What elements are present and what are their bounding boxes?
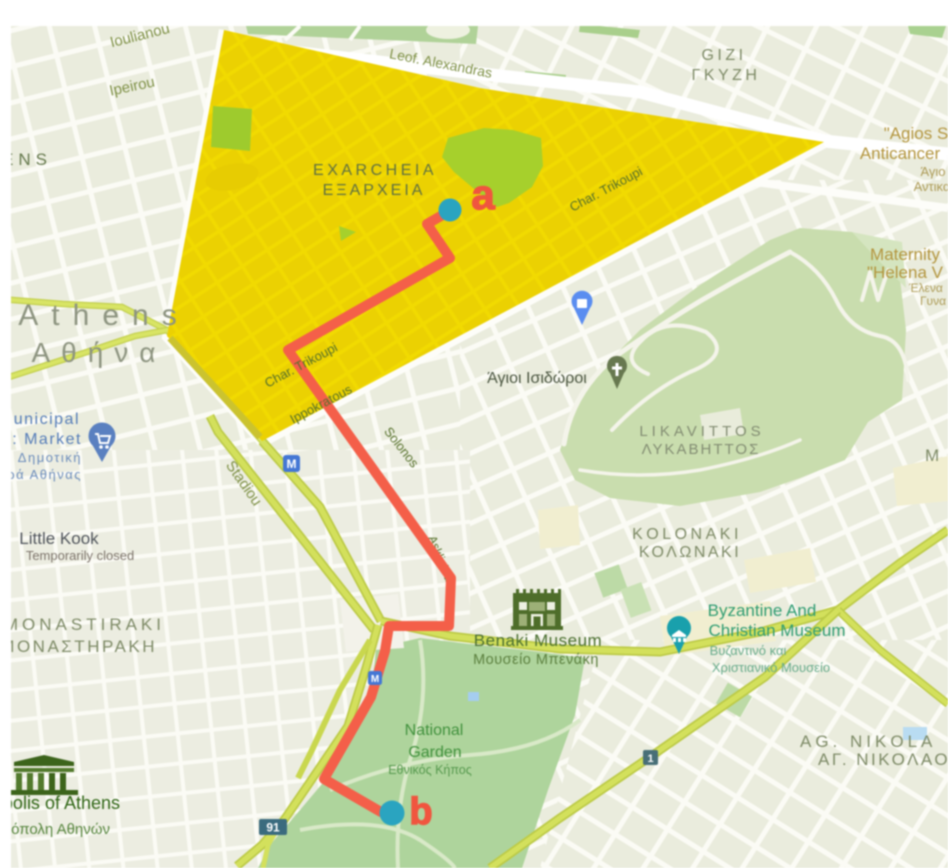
svg-text:ΛΥΚΑΒΗΤΤΟΣ: ΛΥΚΑΒΗΤΤΟΣ [642,441,761,458]
svg-text:Maternity: Maternity [870,245,940,264]
svg-text:Δημοτική: Δημοτική [18,450,82,465]
svg-text:Athens: Athens [18,299,189,332]
svg-text:Christian Museum: Christian Museum [709,621,846,640]
svg-text:M: M [925,446,939,465]
svg-text:Temporarily closed: Temporarily closed [26,548,134,563]
svg-text:National: National [405,722,464,739]
svg-text:Γυνα: Γυνα [920,294,946,308]
svg-text:b: b [409,791,432,833]
svg-text:AG. NIKOLA: AG. NIKOLA [800,732,936,751]
svg-text:ΓΚΥΖΗ: ΓΚΥΖΗ [692,67,761,84]
svg-text:ΜΟΝΑΣΤΗΡΑΚΗ: ΜΟΝΑΣΤΗΡΑΚΗ [0,637,157,656]
svg-text:Anticancer: Anticancer [860,144,941,163]
svg-text:Αντικα: Αντικα [914,179,948,194]
svg-text:Άγιο: Άγιο [920,164,945,179]
svg-text:Μουσείο Μπενάκη: Μουσείο Μπενάκη [473,652,599,668]
svg-text:ΚΟΛΩΝΑΚΙ: ΚΟΛΩΝΑΚΙ [639,544,741,561]
svg-text:Little Kook: Little Kook [19,529,99,548]
svg-text:M: M [371,674,379,685]
svg-text:: Market: : Market [12,431,82,448]
svg-text:Αθήνα: Αθήνα [31,337,166,368]
svg-text:Έλενα: Έλενα [908,281,943,295]
svg-text:Εθνικός Κήπος: Εθνικός Κήπος [388,763,472,777]
svg-text:opolis of Athens: opolis of Athens [0,793,120,813]
svg-text:1: 1 [647,753,653,765]
svg-text:a: a [471,171,495,218]
svg-text:M: M [287,457,297,471]
svg-text:"Agios S: "Agios S [884,124,948,143]
svg-text:"Helena V: "Helena V [867,263,944,282]
svg-text:KOLONAKI: KOLONAKI [632,526,742,543]
svg-text:Άγιοι Ισιδώροι: Άγιοι Ισιδώροι [487,370,587,387]
svg-text:MONASTIRAKI: MONASTIRAKI [4,615,165,634]
svg-text:Byzantine And: Byzantine And [708,601,817,620]
svg-text:ΑΓ. ΝΙΚΟΛΑΟ: ΑΓ. ΝΙΚΟΛΑΟ [818,750,948,769]
svg-text:ρόπολη Αθηνών: ρόπολη Αθηνών [3,821,110,838]
svg-text:Χριστιανικό Μουσείο: Χριστιανικό Μουσείο [712,660,830,675]
svg-text:LIKAVITTOS: LIKAVITTOS [639,423,764,440]
svg-text:Municipal: Municipal [0,411,80,428]
svg-text:GIZI: GIZI [701,47,746,64]
svg-text:ΕΞΑΡΧΕΙΑ: ΕΞΑΡΧΕΙΑ [323,182,426,199]
svg-text:ρά Αθήνας: ρά Αθήνας [7,467,82,482]
svg-text:Βυζαντινό και: Βυζαντινό και [710,643,787,658]
svg-text:Benaki Museum: Benaki Museum [474,631,602,650]
svg-text:Garden: Garden [408,744,461,761]
svg-text:EXARCHEIA: EXARCHEIA [313,162,437,179]
svg-text:91: 91 [266,821,280,835]
